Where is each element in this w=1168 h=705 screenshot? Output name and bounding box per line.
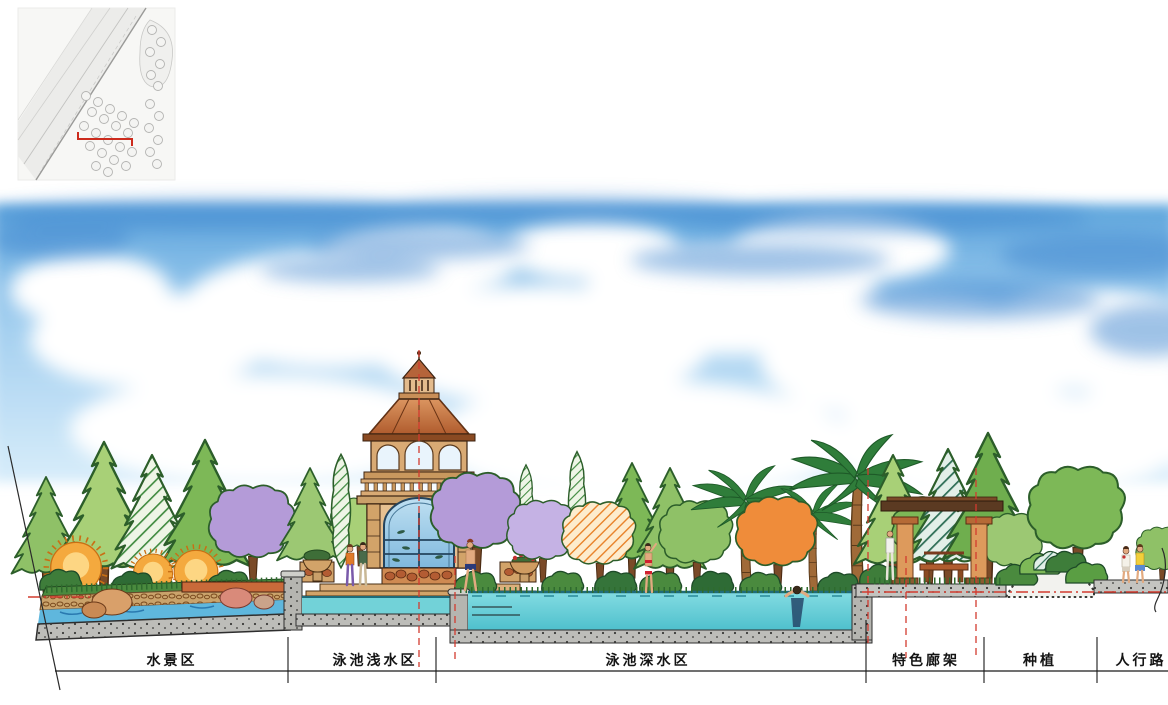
pergola-beam — [881, 501, 1003, 511]
bush — [542, 571, 584, 592]
figure-visitor — [346, 544, 354, 585]
zone-label-pergola: 特色廊架 — [892, 652, 960, 668]
pergola-column — [971, 524, 987, 580]
boulder — [82, 602, 106, 618]
zone-label-water-feature: 水景区 — [147, 652, 198, 668]
boulder — [254, 595, 274, 609]
zone-label-shallow-pool: 泳池浅水区 — [333, 652, 418, 668]
shallow-pool-water — [302, 597, 450, 614]
figure-visitor — [359, 542, 367, 585]
zone-label-planting: 种植 — [1022, 652, 1057, 668]
landscape-section-rendering: 水景区 泳池浅水区 泳池深水区 特色廊架 种植 人行路 — [0, 0, 1168, 705]
figure-pedestrian — [1122, 546, 1130, 582]
location-minimap — [18, 8, 175, 180]
boulder — [220, 588, 252, 608]
pergola-column — [897, 524, 913, 580]
zone-label-deep-pool: 泳池深水区 — [606, 652, 691, 668]
section-drawing: 水景区 泳池浅水区 泳池深水区 特色廊架 种植 人行路 — [0, 0, 1168, 705]
tree-purple — [209, 485, 295, 585]
zone-label-footpath: 人行路 — [1116, 652, 1167, 668]
